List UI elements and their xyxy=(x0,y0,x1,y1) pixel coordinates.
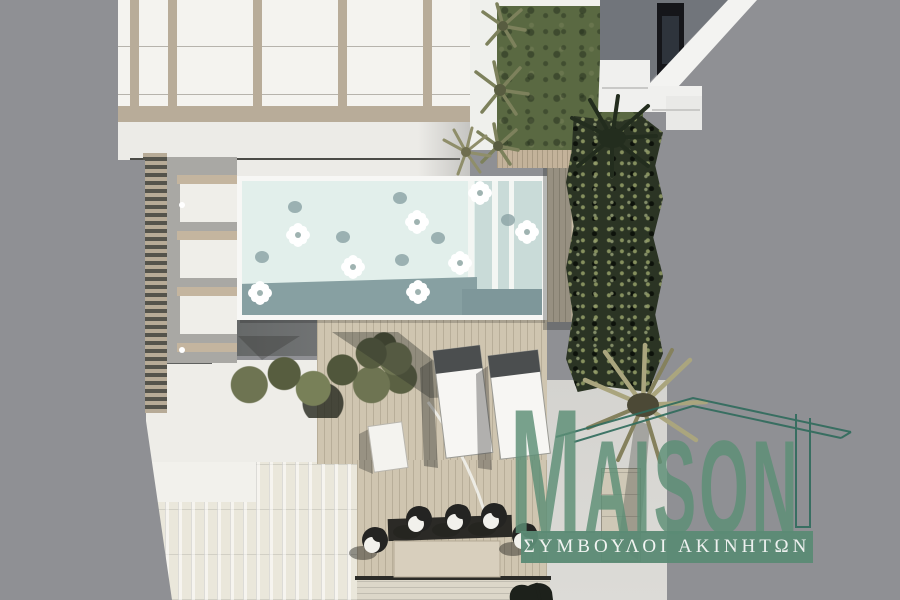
brand-subtitle: ΣΥΜΒΟΥΛΟΙ ΑΚΙΝΗΤΩΝ xyxy=(524,536,811,558)
white-stairs xyxy=(598,0,757,130)
render-overlay: MAISON xyxy=(0,0,900,600)
left-ground-wedge xyxy=(118,160,172,600)
palm-row xyxy=(476,4,528,164)
bush-shadow xyxy=(238,336,300,360)
brand-banner: ΣΥΜΒΟΥΛΟΙ ΑΚΙΝΗΤΩΝ xyxy=(521,531,813,563)
bottom-tree xyxy=(510,583,553,600)
property-render-canvas: MAISON ΣΥΜΒΟΥΛΟΙ ΑΚΙΝΗΤΩΝ xyxy=(0,0,900,600)
small-seat xyxy=(359,422,408,474)
round-chair xyxy=(349,527,388,560)
